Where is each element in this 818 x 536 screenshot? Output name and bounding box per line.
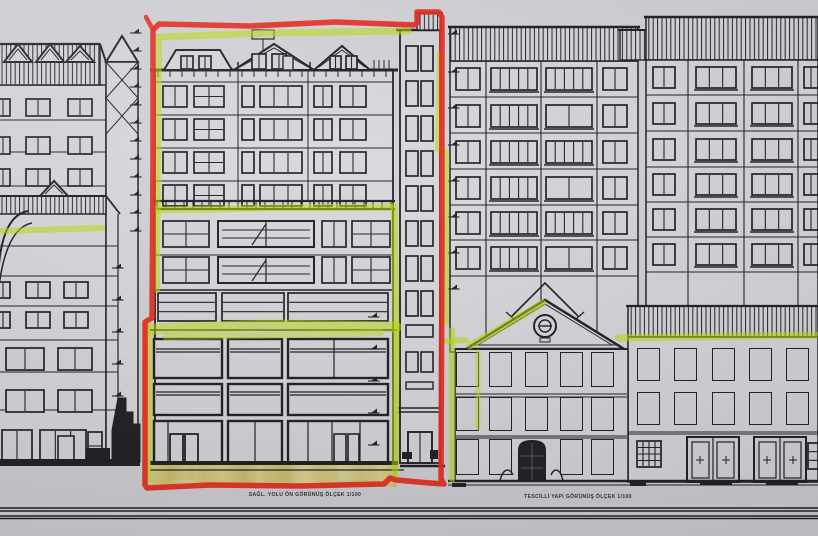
elevation-drawing-canvas (0, 0, 818, 536)
left-elevation-caption: SAĞL. YOLU ÖN GÖRÜNÜŞ ÖLÇEK 1/100 (243, 492, 366, 498)
left-building-elevation (0, 36, 140, 464)
elevation-drawing-photo: SAĞL. YOLU ÖN GÖRÜNÜŞ ÖLÇEK 1/100 TESCİL… (0, 0, 818, 536)
historic-elevation-caption: TESCİLLİ YAPI GÖRÜNÜŞ ÖLÇEK 1/100 (514, 494, 643, 500)
far-right-apartment-elevation (618, 17, 818, 312)
